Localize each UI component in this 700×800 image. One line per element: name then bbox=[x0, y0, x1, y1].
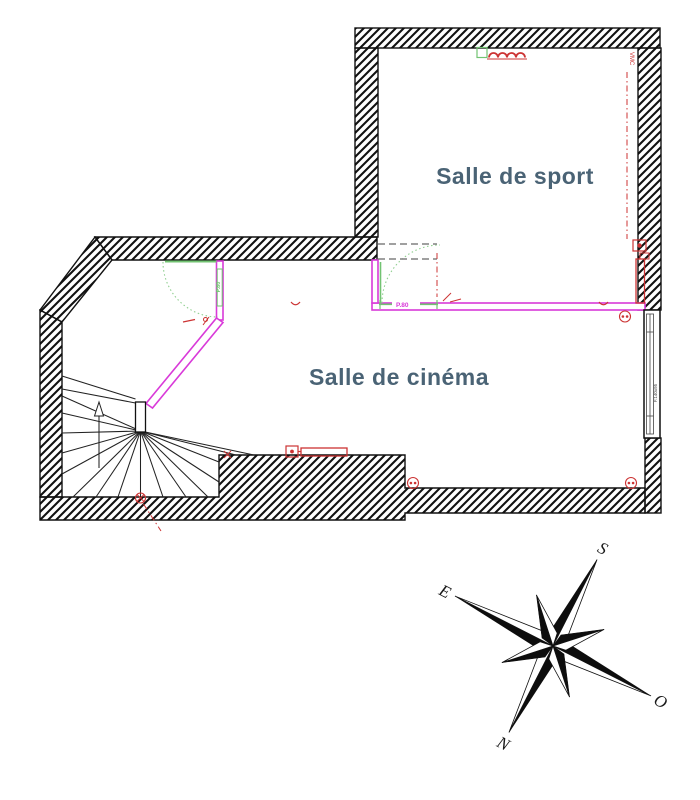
stair-newel-post bbox=[136, 402, 146, 432]
wall-bottom bbox=[40, 455, 645, 520]
shutter-coil-symbol bbox=[489, 53, 525, 58]
red-arc-mark-1 bbox=[291, 302, 300, 305]
wall-sport-right bbox=[638, 48, 661, 310]
wall-cinema-right-lower bbox=[645, 438, 661, 513]
floor-plan-page: P.80 P.80 F.140x95 bbox=[0, 0, 700, 800]
switch-mark-partition bbox=[443, 293, 451, 301]
window-right: F.140x95 bbox=[644, 310, 660, 438]
socket-symbol bbox=[626, 478, 637, 489]
exterior-walls bbox=[40, 28, 661, 520]
wall-sport-top bbox=[355, 28, 660, 48]
compass-label-east: E bbox=[435, 580, 454, 602]
socket-symbol bbox=[408, 478, 419, 489]
radiator-cinema-valve-dot bbox=[290, 450, 294, 454]
door-hall-swing-arc bbox=[163, 262, 218, 317]
shutter-box bbox=[477, 48, 487, 58]
door-partition-label: P.80 bbox=[396, 302, 409, 309]
door-hall-label: P.80 bbox=[216, 282, 222, 293]
wall-left-chamfer bbox=[40, 237, 112, 322]
stair-direction-arrow bbox=[95, 402, 104, 416]
compass-label-west: O bbox=[651, 690, 671, 713]
window-label: F.140x95 bbox=[653, 383, 658, 402]
socket-symbol bbox=[620, 311, 631, 322]
room-label-cinema: Salle de cinéma bbox=[309, 364, 489, 390]
door-partition-swing-arc bbox=[382, 245, 440, 303]
partition-diagonal bbox=[146, 318, 223, 408]
vent-label: VMC bbox=[628, 52, 634, 66]
compass-label-south: S bbox=[595, 538, 612, 559]
wall-sport-left bbox=[355, 48, 378, 237]
compass-label-north: N bbox=[493, 732, 514, 755]
wall-left-top bbox=[95, 237, 377, 260]
switch-line-partition bbox=[450, 299, 461, 302]
radiator-valve-dot bbox=[637, 243, 641, 247]
compass-rose: S E O N bbox=[386, 482, 700, 800]
wall-left-side bbox=[40, 310, 62, 497]
partition-sport-left bbox=[372, 260, 378, 303]
switch-mark-hall bbox=[183, 320, 195, 323]
room-label-sport: Salle de sport bbox=[436, 163, 594, 189]
floor-plan-drawing: P.80 P.80 F.140x95 bbox=[0, 0, 700, 800]
